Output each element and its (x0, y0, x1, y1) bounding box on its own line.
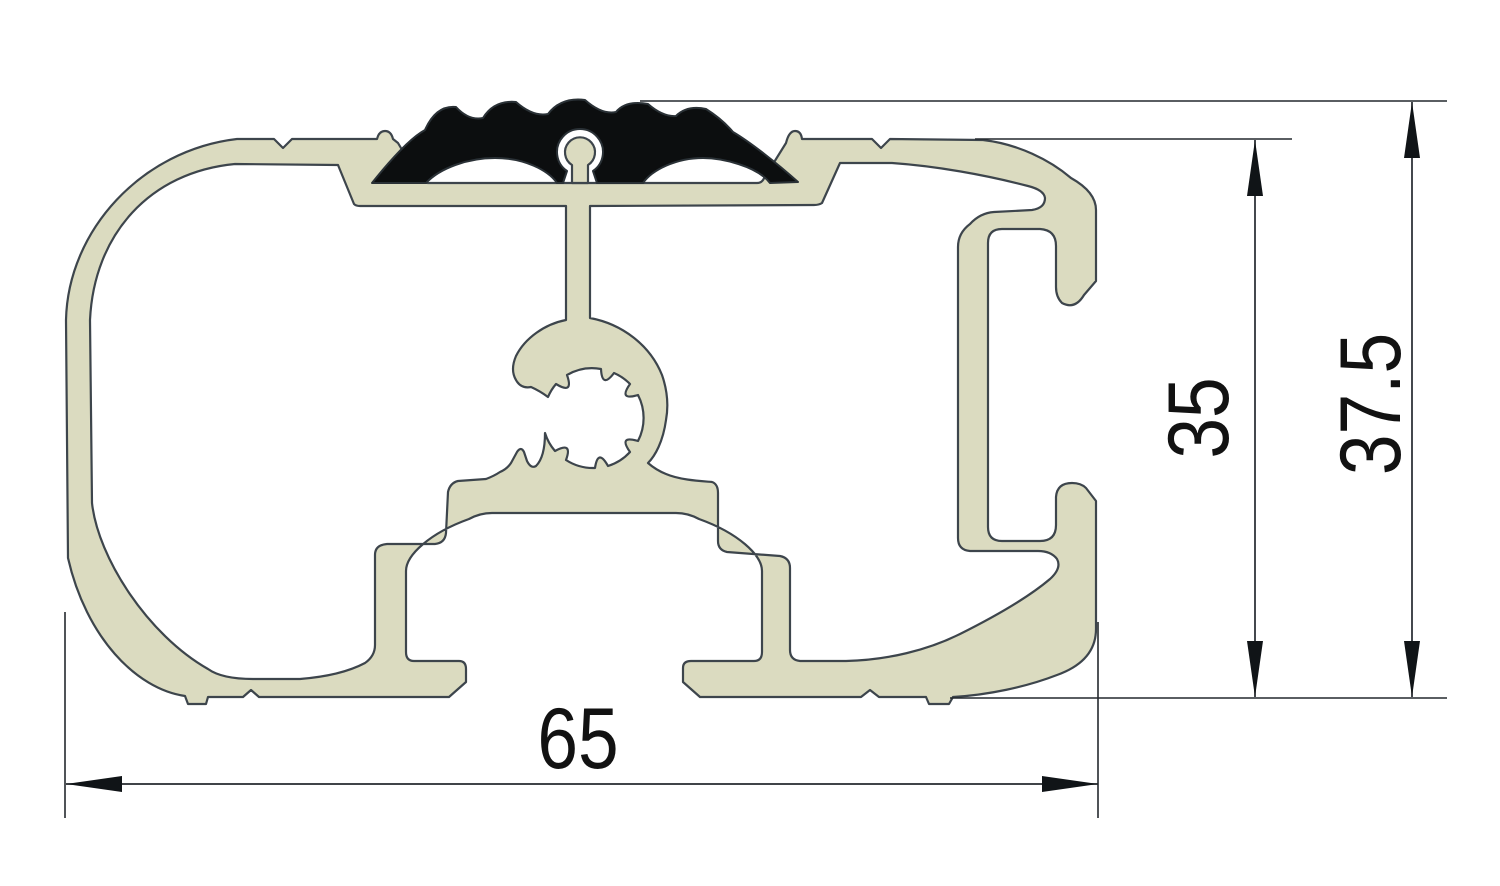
aluminum-profile (66, 131, 1096, 704)
arrow-down-icon (1247, 641, 1263, 697)
dimension-label-width: 65 (537, 690, 618, 786)
aluminum-profile-shape (66, 131, 1096, 704)
dimension-label-35: 35 (1150, 377, 1246, 458)
arrow-right-icon (1042, 776, 1098, 792)
arrow-down-icon (1404, 641, 1420, 697)
rubber-grip (372, 100, 798, 183)
arrow-left-icon (66, 776, 122, 792)
arrow-up-icon (1247, 140, 1263, 196)
arrow-up-icon (1404, 102, 1420, 158)
profile-drawing-svg: 65 35 37.5 (0, 0, 1500, 886)
stem-knob (565, 137, 595, 183)
dimension-label-37-5: 37.5 (1322, 333, 1418, 475)
drawing-canvas: 65 35 37.5 (0, 0, 1500, 886)
